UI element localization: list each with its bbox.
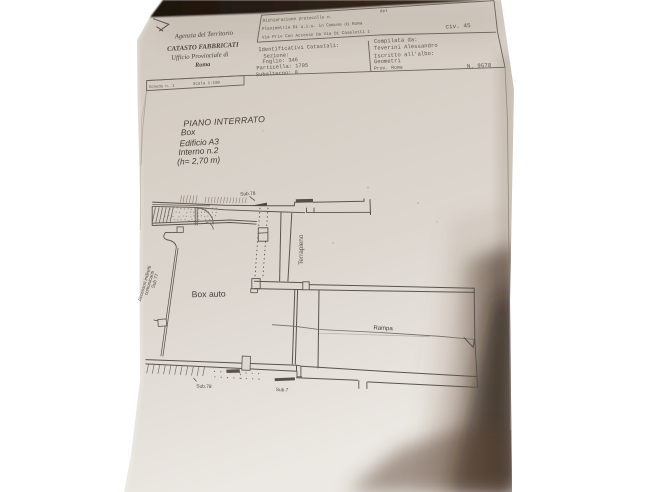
svg-text:del: del xyxy=(380,9,388,14)
svg-text:Geometri: Geometri xyxy=(374,57,402,65)
svg-text:Rampa: Rampa xyxy=(373,326,393,333)
svg-text:Roma: Roma xyxy=(194,61,211,69)
svg-text:civ. 45: civ. 45 xyxy=(445,22,471,30)
svg-text:Terrapieno: Terrapieno xyxy=(298,234,305,265)
svg-text:Box: Box xyxy=(181,127,197,138)
svg-text:Sub.7: Sub.7 xyxy=(276,387,289,393)
svg-text:Sub.78: Sub.78 xyxy=(240,191,256,198)
svg-text:Sub.78: Sub.78 xyxy=(196,384,212,391)
svg-text:N. 9578: N. 9578 xyxy=(467,62,492,70)
svg-text:Box auto: Box auto xyxy=(192,289,226,300)
